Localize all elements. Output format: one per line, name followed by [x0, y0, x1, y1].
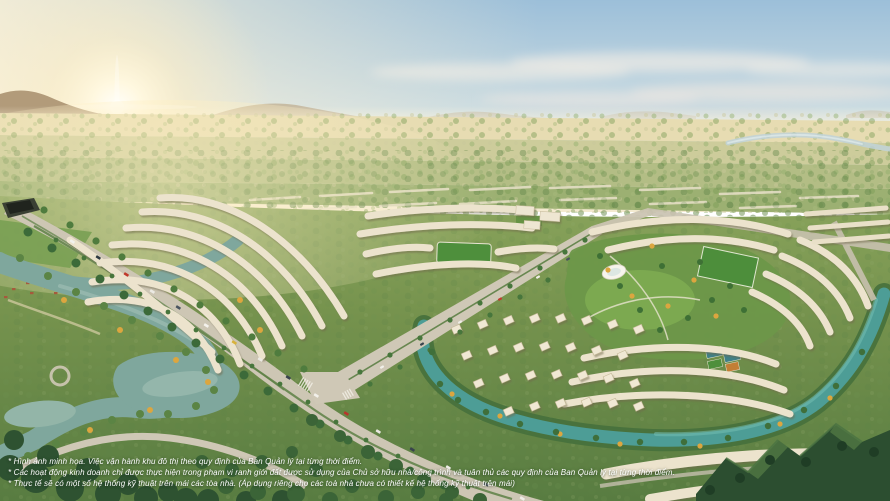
caption-line-1: * Hình ảnh minh họa. Việc vận hành khu đ…: [8, 457, 675, 468]
scene-canvas: [0, 0, 890, 501]
caption-line-3: * Thực tế sẽ có một số hệ thống kỹ thuật…: [8, 479, 675, 490]
caption-line-2: * Các hoạt động kinh doanh chỉ được thực…: [8, 468, 675, 479]
aerial-masterplan-render: * Hình ảnh minh họa. Việc vận hành khu đ…: [0, 0, 890, 501]
caption: * Hình ảnh minh họa. Việc vận hành khu đ…: [8, 457, 675, 489]
